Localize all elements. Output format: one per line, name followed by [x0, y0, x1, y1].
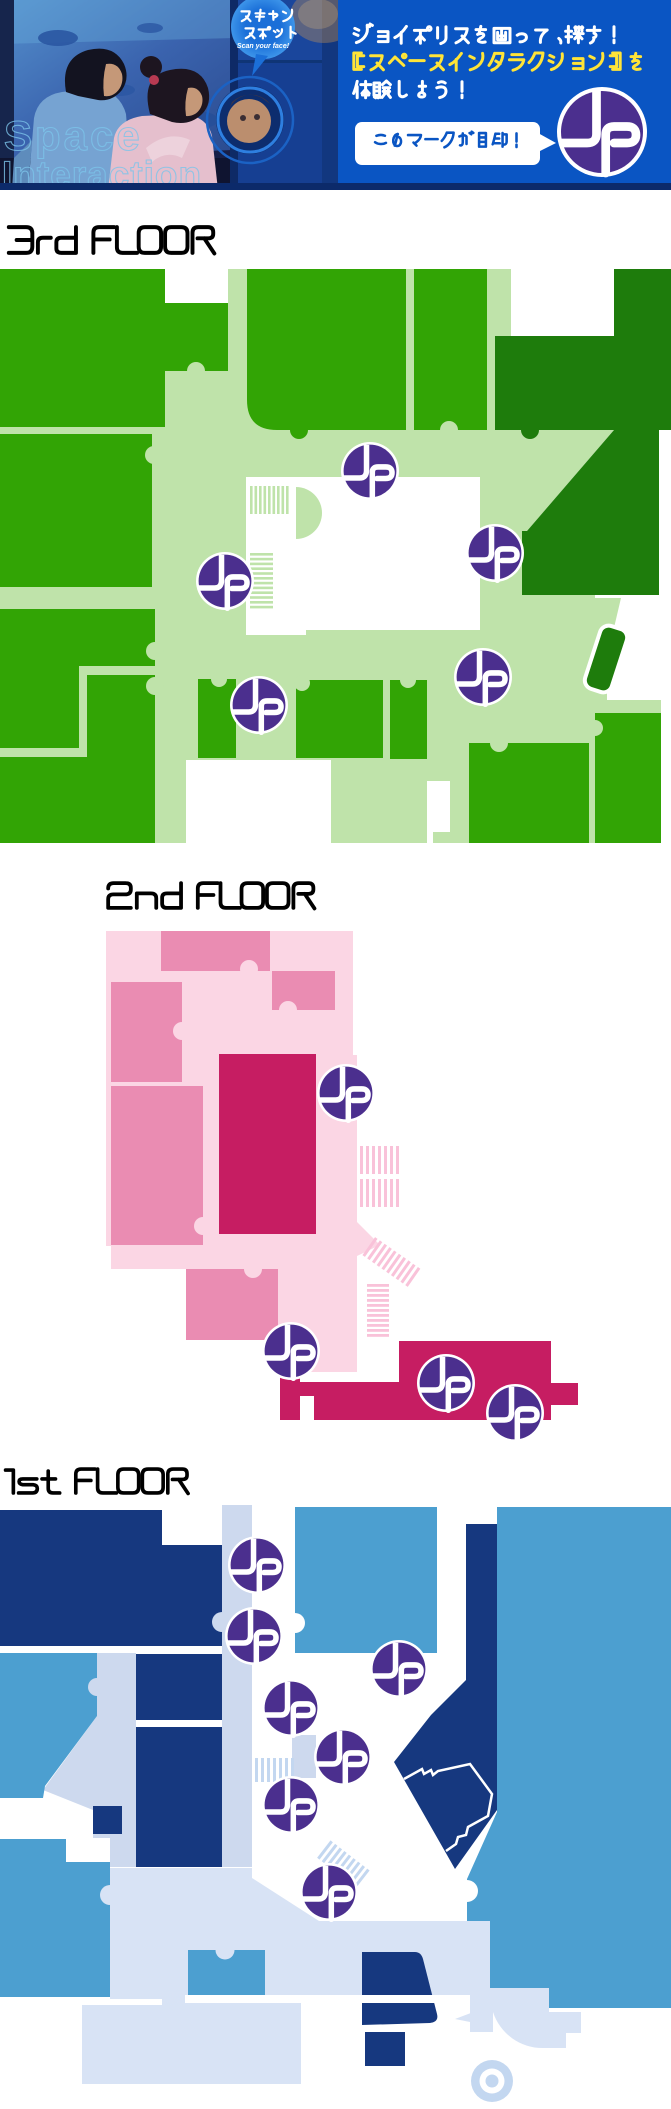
svg-text:Scan your face!: Scan your face! [237, 43, 290, 50]
svg-text:Space: Space [4, 112, 143, 159]
